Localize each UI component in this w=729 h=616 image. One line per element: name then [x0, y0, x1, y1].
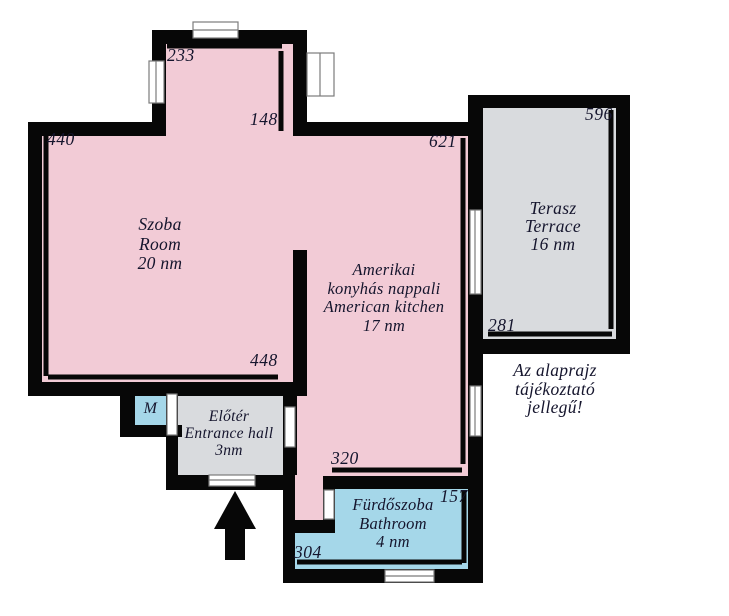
entrance-arrow-head	[214, 491, 256, 529]
nappali-name-en: American kitchen	[308, 298, 460, 317]
furdo-name-en: Bathroom	[334, 515, 452, 534]
eloter-area: 3nm	[177, 442, 281, 459]
furdo-area: 4 nm	[334, 533, 452, 552]
entrance-arrow-shaft	[225, 529, 245, 560]
disclaimer-note: Az alaprajz tájékoztató jellegű!	[501, 361, 609, 417]
szoba-room-area	[42, 136, 468, 382]
wall-szoba-living-divider	[293, 250, 307, 396]
floor-plan: Szoba Room 20 nm Amerikai konyhás nappal…	[0, 0, 729, 616]
nappali-name-line2: konyhás nappali	[308, 280, 460, 299]
szoba-area: 20 nm	[110, 254, 210, 274]
nappali-area: 17 nm	[308, 317, 460, 336]
szoba-name-en: Room	[110, 235, 210, 255]
wall-terrace-bottom	[468, 339, 630, 354]
eloter-name-en: Entrance hall	[177, 425, 281, 442]
dim-szoba-left: 440	[47, 130, 75, 148]
room-label-nappali: Amerikai konyhás nappali American kitche…	[308, 261, 460, 335]
eloter-name-hu: Előtér	[177, 408, 281, 425]
disclaimer-line1: Az alaprajz	[501, 361, 609, 380]
room-label-furdoszoba: Fürdőszoba Bathroom 4 nm	[334, 496, 452, 552]
dim-furdo-bottom: 304	[294, 543, 322, 561]
room-label-m-closet: M	[135, 399, 166, 419]
wall-szoba-left	[28, 122, 42, 396]
dim-terasz-right: 596	[585, 105, 613, 123]
dim-nook-top: 233	[167, 46, 195, 64]
entrance-arrow-icon	[214, 491, 256, 560]
dim-nappali-bottom: 320	[331, 449, 359, 467]
dim-terasz-bottom: 281	[488, 316, 516, 334]
terasz-name-en: Terrace	[500, 217, 606, 235]
room-label-terasz: Terasz Terrace 16 nm	[500, 199, 606, 253]
dim-furdo-right: 157	[440, 487, 468, 505]
dim-nappali-right: 621	[429, 132, 457, 150]
room-label-szoba: Szoba Room 20 nm	[110, 215, 210, 274]
szoba-name-hu: Szoba	[110, 215, 210, 235]
room-label-eloter: Előtér Entrance hall 3nm	[177, 408, 281, 459]
furdo-name-hu: Fürdőszoba	[334, 496, 452, 515]
living-room-lower-area	[295, 382, 468, 478]
living-room-corridor-area	[295, 478, 323, 520]
wall-bath-bottom	[283, 569, 483, 583]
entrance-right-door-icon	[285, 407, 295, 447]
disclaimer-line2: tájékoztató	[501, 380, 609, 399]
nappali-name-line1: Amerikai	[308, 261, 460, 280]
disclaimer-line3: jellegű!	[501, 398, 609, 417]
dim-nook-right: 148	[250, 110, 278, 128]
wall-bath-right	[468, 476, 483, 583]
wall-nook-right	[293, 30, 307, 136]
entrance-left-door-icon	[167, 394, 177, 435]
dim-szoba-bottom: 448	[250, 351, 278, 369]
terasz-area: 16 nm	[500, 235, 606, 253]
bathroom-door-icon	[324, 490, 334, 519]
wall-terrace-right	[616, 95, 630, 348]
terasz-name-hu: Terasz	[500, 199, 606, 217]
